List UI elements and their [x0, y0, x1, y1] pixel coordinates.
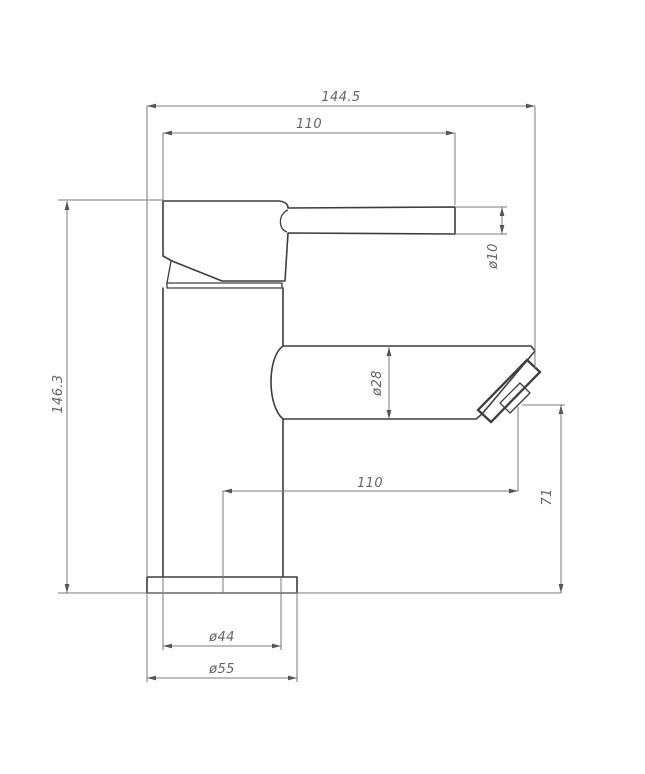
- label-body-diameter: ø44: [208, 630, 235, 645]
- dimension-lines: [58, 106, 565, 682]
- label-outlet-height: 71: [540, 488, 555, 505]
- label-spout-diameter: ø28: [370, 370, 385, 397]
- label-base-diameter: ø55: [208, 662, 235, 677]
- drawing-page: 144.5 110 146.3 ø10 ø28 110 71 ø44 ø55: [0, 0, 645, 774]
- dimension-handle-diameter: [455, 207, 507, 234]
- dimension-labels: 144.5 110 146.3 ø10 ø28 110 71 ø44 ø55: [51, 90, 555, 677]
- dimension-handle-length: [163, 133, 455, 205]
- lever-root-fillet-line: [280, 210, 288, 232]
- dimension-overall-width: [147, 106, 535, 577]
- label-handle-length: 110: [296, 117, 322, 132]
- spout-outline: [271, 346, 535, 419]
- collar-band: [167, 283, 282, 288]
- dimension-spout-reach: [223, 407, 518, 593]
- label-overall-height: 146.3: [51, 374, 66, 413]
- handle-skirt-line: [167, 261, 171, 283]
- label-spout-reach: 110: [357, 476, 383, 491]
- label-overall-width: 144.5: [321, 90, 360, 105]
- handle-lever-outline: [163, 201, 455, 281]
- label-handle-diameter: ø10: [486, 243, 501, 270]
- faucet-outline: [147, 201, 540, 593]
- faucet-technical-drawing: 144.5 110 146.3 ø10 ø28 110 71 ø44 ø55: [0, 0, 645, 774]
- base-plate: [147, 577, 297, 593]
